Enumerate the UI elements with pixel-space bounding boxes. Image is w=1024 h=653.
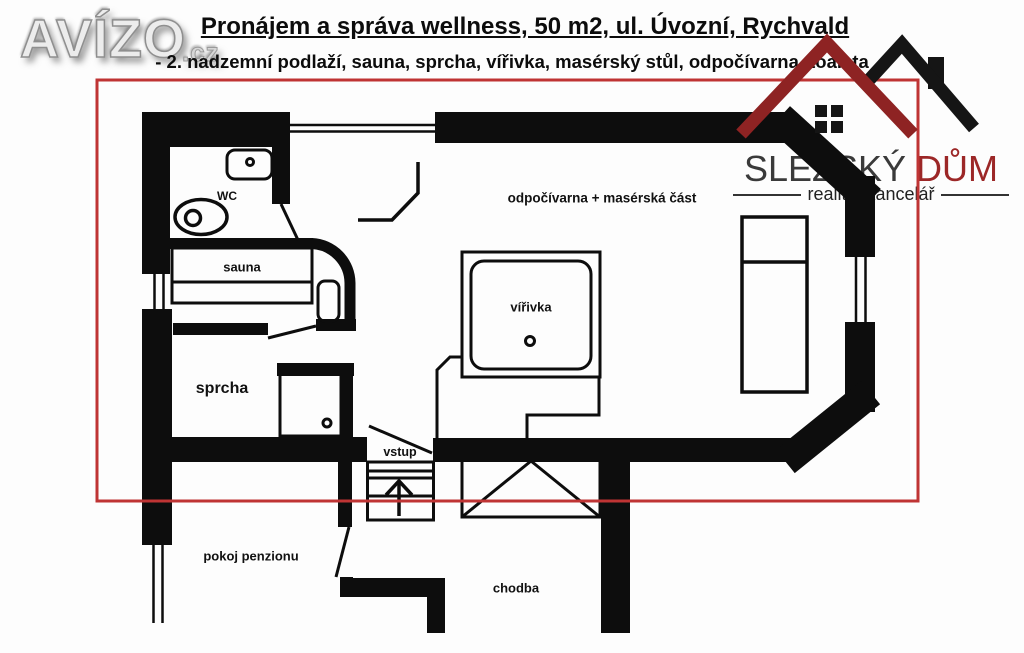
shower-tray — [280, 368, 341, 436]
wall-sauna-curve — [308, 244, 350, 321]
listing-flyer: AVÍZO.cz Pronájem a správa wellness, 50 … — [0, 0, 1024, 653]
wall-sauna-sprcha-divider — [173, 323, 268, 335]
page-title: Pronájem a správa wellness, 50 m2, ul. Ú… — [201, 13, 849, 41]
slezsky-dum-roofs — [0, 0, 1024, 653]
roof-window-pane — [831, 105, 843, 117]
wall-right-lower — [845, 322, 875, 412]
whirlpool-outer — [462, 252, 600, 377]
room-label-virivka: vířivka — [510, 300, 551, 315]
entry-stairs — [368, 462, 434, 520]
partition-door — [358, 162, 418, 220]
page-subtitle: - 2. nadzemní podlaží, sauna, sprcha, ví… — [155, 51, 869, 73]
tagline-rule-right — [941, 194, 1009, 196]
floorplan-drawing — [0, 0, 1024, 653]
room-label-wc: WC — [217, 189, 237, 203]
room-label-pokoj-penzionu: pokoj penzionu — [203, 549, 298, 564]
whirlpool-drain — [526, 337, 535, 346]
stair-void-outline — [462, 460, 600, 517]
room-label-sauna: sauna — [223, 260, 261, 275]
wall-sauna-jamb — [316, 319, 356, 331]
door-pokoj — [336, 527, 349, 577]
roof-window-icon — [815, 105, 843, 133]
wall-left-upper — [142, 112, 170, 274]
platform-right-edge — [527, 377, 599, 438]
shower-drain — [323, 419, 331, 427]
sauna-heater — [318, 281, 339, 321]
wall-top — [435, 112, 795, 143]
roof-window-pane — [831, 121, 843, 133]
wall-pokoj-vertical — [427, 597, 445, 633]
wall-wc-top — [142, 112, 290, 147]
wall-corner-bottomright-diagonal — [797, 402, 859, 452]
roof-black-icon — [869, 44, 974, 128]
roof-window-pane — [815, 105, 827, 117]
platform-left-edge — [437, 357, 462, 438]
wall-pokoj-horizontal — [340, 578, 445, 597]
room-label-sprcha: sprcha — [196, 380, 248, 398]
wall-chodba — [601, 460, 630, 633]
highlight-rect-border — [97, 80, 918, 501]
room-label-chodba: chodba — [493, 581, 539, 596]
stair-void-diagonal-right — [531, 461, 600, 517]
door-sauna — [268, 326, 316, 338]
room-label-odpocivarna: odpočívarna + masérská část — [508, 191, 697, 206]
wall-bottom-left — [142, 437, 367, 462]
slezsky-dum-tagline: realitní kancelář — [733, 184, 1009, 205]
stair-void-diagonal-left — [462, 461, 531, 517]
wall-pokoj-stub — [340, 577, 353, 597]
wall-shower-right — [341, 363, 353, 460]
wall-sauna-top — [168, 238, 313, 249]
wall-wc-right — [272, 147, 290, 204]
toilet — [175, 200, 227, 235]
roof-chimney — [928, 57, 944, 89]
fixtures — [172, 150, 807, 577]
tagline-rule-left — [733, 194, 801, 196]
room-label-vstup: vstup — [383, 445, 416, 459]
roof-window-pane — [815, 121, 827, 133]
entry-arrow-head — [386, 481, 412, 495]
door-wc — [281, 204, 298, 240]
wall-shower-top — [277, 363, 354, 376]
wall-bottom-right — [433, 438, 799, 462]
wall-left-lower — [142, 309, 172, 545]
wall-stub-below-entry — [338, 462, 352, 527]
sink-drain — [247, 159, 254, 166]
tagline-text: realitní kancelář — [807, 184, 934, 205]
massage-table — [742, 217, 807, 392]
whirlpool-inner — [471, 261, 591, 369]
toilet-bowl — [186, 211, 201, 226]
highlight-rectangle — [0, 0, 1024, 653]
sauna-bench — [172, 248, 312, 303]
sink — [227, 150, 272, 179]
